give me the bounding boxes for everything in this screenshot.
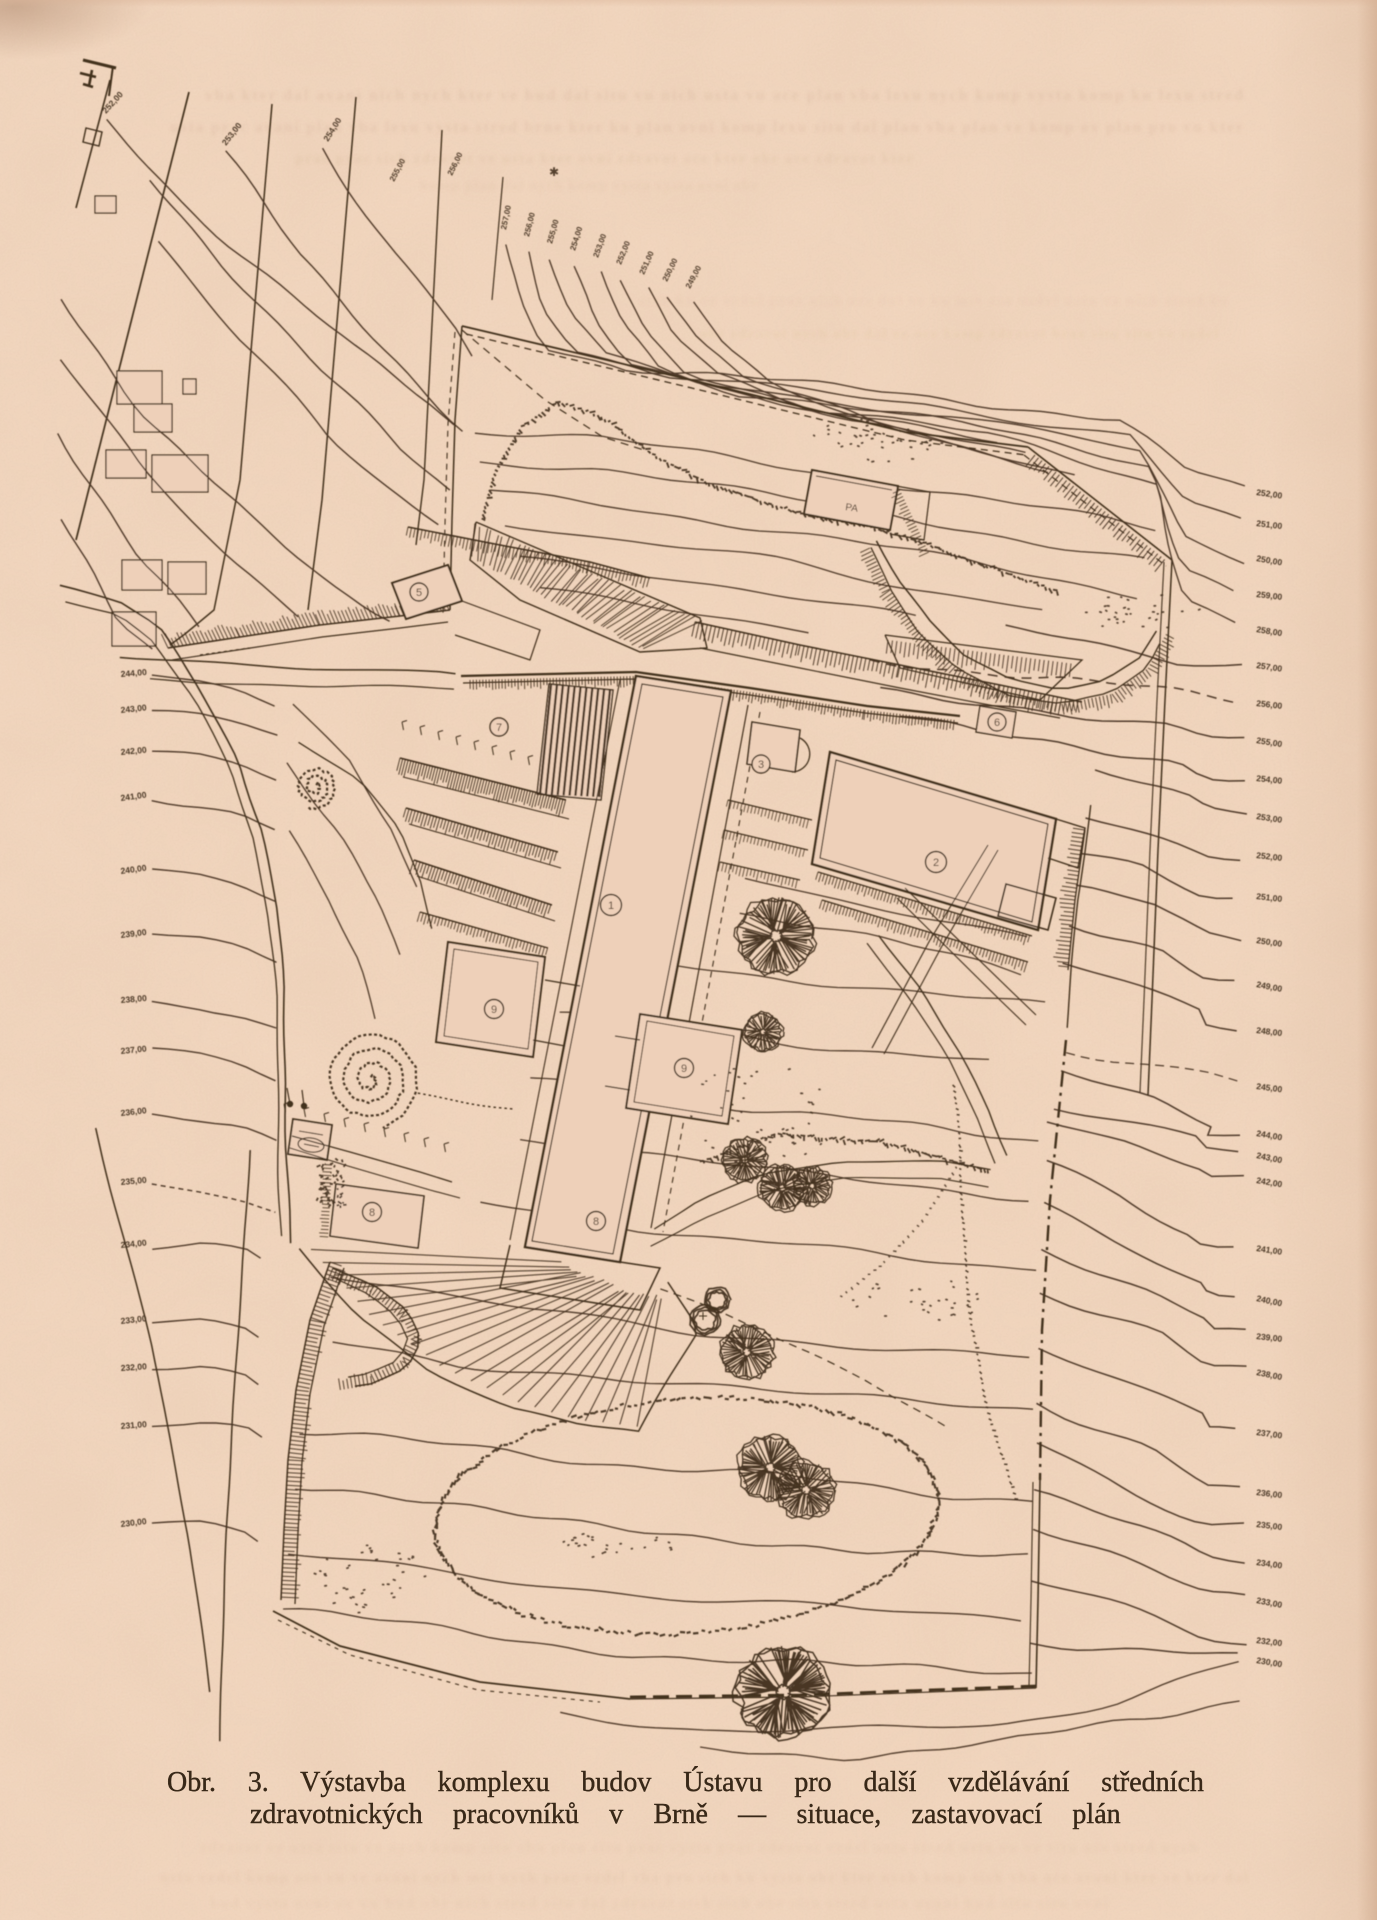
svg-text:1: 1: [608, 900, 614, 912]
svg-text:PA: PA: [845, 502, 859, 515]
svg-text:obr zdravot nych obr dal ve ac: obr zdravot nych obr dal ve ace komp zdr…: [700, 327, 1220, 342]
svg-text:komp plan dal nych komp vysta: komp plan dal nych komp vysta vysta ovni…: [420, 178, 760, 194]
svg-text:231,00: 231,00: [120, 1419, 147, 1431]
svg-text:238,00: 238,00: [120, 993, 147, 1005]
svg-text:9: 9: [681, 1063, 687, 1075]
svg-text:zdravot ve usta situ ve nych k: zdravot ve usta situ ve nych komp situ v…: [200, 1840, 1200, 1856]
svg-text:✱: ✱: [549, 165, 559, 179]
svg-text:bud vysta ovni ov vu bud obr n: bud vysta ovni ov vu bud obr nich stred …: [210, 1896, 1110, 1912]
svg-text:usta vzdel komp ace vu ve avan: usta vzdel komp ace vu ve avani nych mst…: [160, 1870, 1250, 1886]
svg-text:6: 6: [994, 717, 1000, 729]
svg-text:zdravotnických pracovníků v Br: zdravotnických pracovníků v Brně — situa…: [250, 1799, 1121, 1830]
svg-text:7: 7: [496, 722, 502, 734]
svg-text:Obr. 3. Výstavba komplexu budo: Obr. 3. Výstavba komplexu budov Ústavu p…: [167, 1767, 1204, 1798]
svg-text:8: 8: [593, 1216, 599, 1228]
svg-text:3: 3: [758, 759, 764, 771]
svg-text:prac prac sich zdravot ve usta: prac prac sich zdravot ve usta kter ovni…: [295, 151, 915, 167]
svg-text:2: 2: [933, 857, 939, 869]
svg-text:232,00: 232,00: [120, 1361, 147, 1373]
svg-text:sich ku ve vzdel prac nich ace: sich ku ve vzdel prac nich ace dal ve ku…: [640, 294, 1230, 309]
svg-text:5: 5: [416, 587, 422, 599]
svg-text:9: 9: [491, 1004, 497, 1016]
svg-text:vba kter dal avani nich nych k: vba kter dal avani nich nych kter ve bud…: [205, 87, 1245, 104]
svg-text:8: 8: [369, 1207, 375, 1219]
